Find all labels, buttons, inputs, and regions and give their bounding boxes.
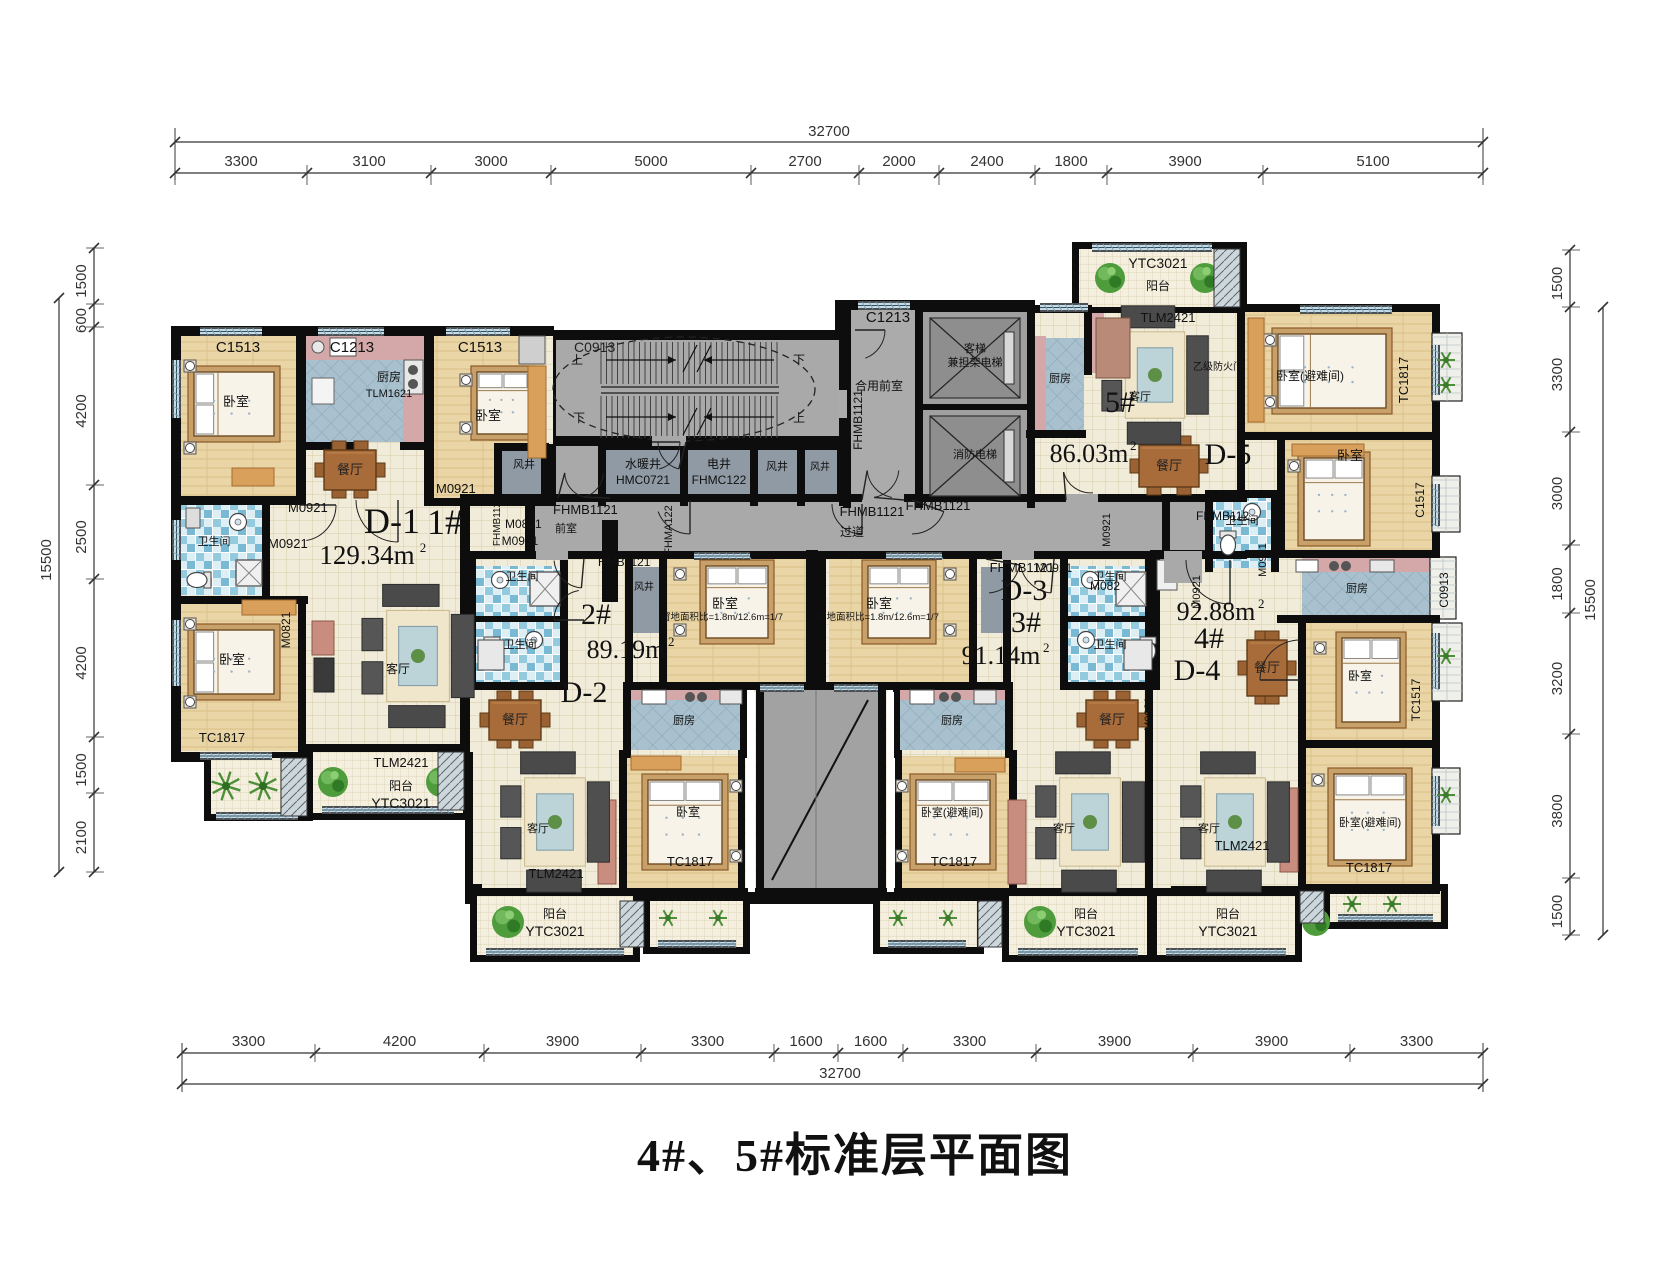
svg-text:C0913: C0913 xyxy=(1437,572,1451,608)
svg-text:YTC3021: YTC3021 xyxy=(1056,923,1115,939)
svg-text:HMC0721: HMC0721 xyxy=(616,473,670,487)
svg-text:1500: 1500 xyxy=(1549,895,1566,928)
svg-text:TC1817: TC1817 xyxy=(931,854,977,869)
svg-text:卧室(避难间): 卧室(避难间) xyxy=(1276,368,1344,383)
svg-text:卫生间: 卫生间 xyxy=(506,569,539,583)
svg-text:TLM2421: TLM2421 xyxy=(374,755,429,770)
svg-text:FHMB1121: FHMB1121 xyxy=(906,498,971,513)
svg-text:M0921: M0921 xyxy=(268,536,308,551)
svg-text:FHMC122: FHMC122 xyxy=(692,473,747,487)
svg-text:风井: 风井 xyxy=(513,457,535,471)
svg-text:客厅: 客厅 xyxy=(527,821,549,835)
svg-text:3300: 3300 xyxy=(224,153,257,170)
svg-text:厨房: 厨房 xyxy=(673,714,695,727)
svg-text:阳台: 阳台 xyxy=(1074,906,1098,921)
svg-text:客厅: 客厅 xyxy=(1053,821,1075,835)
svg-text:C1517: C1517 xyxy=(1413,482,1427,518)
svg-text:3300: 3300 xyxy=(691,1033,724,1050)
svg-text:阳台: 阳台 xyxy=(1216,906,1240,921)
svg-text:客梯: 客梯 xyxy=(964,341,986,355)
svg-text:M0921: M0921 xyxy=(288,500,328,515)
svg-text:卫生间: 卫生间 xyxy=(1094,637,1127,651)
svg-text:上: 上 xyxy=(793,411,805,425)
svg-text:3800: 3800 xyxy=(1549,794,1566,827)
svg-text:TLM2421: TLM2421 xyxy=(529,866,584,881)
svg-text:C1513: C1513 xyxy=(458,339,502,356)
svg-text:TC1817: TC1817 xyxy=(1396,357,1411,403)
svg-text:厨房: 厨房 xyxy=(941,714,963,727)
svg-text:1500: 1500 xyxy=(73,753,90,786)
svg-text:1600: 1600 xyxy=(854,1033,887,1050)
svg-text:电井: 电井 xyxy=(707,457,731,471)
svg-text:卧室(避难间): 卧室(避难间) xyxy=(921,805,983,819)
svg-text:兼担架电梯: 兼担架电梯 xyxy=(948,355,1003,369)
svg-text:2: 2 xyxy=(668,634,675,649)
svg-text:下: 下 xyxy=(793,353,805,367)
svg-text:89.19m: 89.19m xyxy=(587,635,666,664)
svg-text:卫生间: 卫生间 xyxy=(504,637,537,651)
svg-text:消防电梯: 消防电梯 xyxy=(953,447,997,461)
svg-text:4200: 4200 xyxy=(383,1033,416,1050)
svg-text:餐厅: 餐厅 xyxy=(1254,660,1280,675)
svg-text:M0921: M0921 xyxy=(1191,575,1203,609)
svg-text:下: 下 xyxy=(573,411,585,425)
svg-text:卧室: 卧室 xyxy=(676,804,700,819)
svg-text:C0913: C0913 xyxy=(574,339,615,355)
svg-text:风井: 风井 xyxy=(766,459,788,473)
svg-text:卧室: 卧室 xyxy=(223,394,249,409)
svg-text:阳台: 阳台 xyxy=(543,906,567,921)
svg-text:2500: 2500 xyxy=(73,520,90,553)
svg-text:4200: 4200 xyxy=(73,394,90,427)
svg-text:C1213: C1213 xyxy=(866,309,910,326)
svg-text:餐厅: 餐厅 xyxy=(1156,458,1182,473)
svg-text:客厅: 客厅 xyxy=(1129,389,1151,403)
svg-text:YTC3021: YTC3021 xyxy=(1198,923,1257,939)
svg-text:卧室: 卧室 xyxy=(475,408,501,423)
svg-text:HMB1121: HMB1121 xyxy=(598,555,651,569)
svg-text:2: 2 xyxy=(1043,640,1050,655)
svg-text:C1513: C1513 xyxy=(216,339,260,356)
svg-text:5000: 5000 xyxy=(634,153,667,170)
svg-text:厨房: 厨房 xyxy=(377,369,401,384)
svg-text:卧室(避难间): 卧室(避难间) xyxy=(1339,815,1401,829)
svg-text:3300: 3300 xyxy=(232,1033,265,1050)
svg-text:M082: M082 xyxy=(1090,579,1120,593)
svg-text:3900: 3900 xyxy=(546,1033,579,1050)
svg-text:1#: 1# xyxy=(427,502,463,542)
svg-text:卫生间: 卫生间 xyxy=(198,534,231,548)
svg-text:2: 2 xyxy=(1130,438,1137,453)
svg-text:15500: 15500 xyxy=(1582,579,1599,621)
svg-text:3900: 3900 xyxy=(1168,153,1201,170)
svg-text:餐厅: 餐厅 xyxy=(502,712,528,727)
svg-text:M0821: M0821 xyxy=(505,517,542,531)
svg-text:前室: 前室 xyxy=(555,521,577,535)
svg-text:TC1817: TC1817 xyxy=(199,730,245,745)
svg-text:餐厅: 餐厅 xyxy=(337,462,363,477)
svg-text:卧室: 卧室 xyxy=(712,596,738,611)
svg-text:YTC3021: YTC3021 xyxy=(371,795,430,811)
svg-text:2400: 2400 xyxy=(970,153,1003,170)
svg-text:卧室: 卧室 xyxy=(866,596,892,611)
svg-text:餐厅: 餐厅 xyxy=(1099,712,1125,727)
svg-text:3900: 3900 xyxy=(1098,1033,1131,1050)
svg-text:2: 2 xyxy=(1258,596,1265,611)
svg-text:卫生间: 卫生间 xyxy=(1226,513,1259,527)
svg-text:1500: 1500 xyxy=(1549,267,1566,300)
svg-text:FHMB1121: FHMB1121 xyxy=(840,504,905,519)
svg-text:上: 上 xyxy=(571,353,583,367)
svg-text:600: 600 xyxy=(73,308,90,333)
svg-text:32700: 32700 xyxy=(808,123,850,140)
svg-text:窗地面积比=1.8m/12.6m=1/7: 窗地面积比=1.8m/12.6m=1/7 xyxy=(817,611,939,623)
svg-text:D-1: D-1 xyxy=(364,501,420,541)
svg-text:客厅: 客厅 xyxy=(1198,821,1220,835)
svg-text:M0921: M0921 xyxy=(1143,697,1155,731)
svg-text:FHMB1121: FHMB1121 xyxy=(851,390,865,450)
svg-text:TLM2421: TLM2421 xyxy=(1141,310,1196,325)
svg-text:3100: 3100 xyxy=(352,153,385,170)
svg-text:M0921: M0921 xyxy=(1036,561,1073,575)
svg-text:M0921: M0921 xyxy=(436,481,476,496)
svg-text:2: 2 xyxy=(420,540,427,555)
svg-text:阳台: 阳台 xyxy=(1146,278,1170,293)
svg-text:1500: 1500 xyxy=(73,264,90,297)
svg-text:D-3: D-3 xyxy=(1001,574,1048,607)
svg-text:3#: 3# xyxy=(1011,606,1041,639)
svg-text:D-5: D-5 xyxy=(1205,438,1252,471)
svg-text:水暖井: 水暖井 xyxy=(625,457,661,471)
svg-text:阳台: 阳台 xyxy=(389,778,413,793)
svg-text:2000: 2000 xyxy=(882,153,915,170)
svg-text:2700: 2700 xyxy=(788,153,821,170)
svg-text:YTC3021: YTC3021 xyxy=(1128,255,1187,271)
svg-text:TC1517: TC1517 xyxy=(1409,678,1423,721)
svg-text:FHMA122: FHMA122 xyxy=(663,505,675,555)
svg-text:3300: 3300 xyxy=(1549,358,1566,391)
svg-text:卧室: 卧室 xyxy=(1337,448,1363,463)
svg-text:风井: 风井 xyxy=(634,580,654,593)
svg-text:风井: 风井 xyxy=(810,460,830,473)
svg-text:C1213: C1213 xyxy=(330,339,374,356)
svg-text:M0921: M0921 xyxy=(1257,543,1269,577)
svg-text:3300: 3300 xyxy=(1400,1033,1433,1050)
svg-text:129.34m: 129.34m xyxy=(319,540,414,570)
svg-text:3000: 3000 xyxy=(474,153,507,170)
svg-text:客厅: 客厅 xyxy=(386,661,410,676)
svg-text:卧室: 卧室 xyxy=(219,652,245,667)
svg-text:3900: 3900 xyxy=(1255,1033,1288,1050)
svg-text:厨房: 厨房 xyxy=(1346,582,1368,595)
svg-text:15500: 15500 xyxy=(38,539,55,581)
svg-text:D-2: D-2 xyxy=(561,676,608,709)
svg-text:91.14m: 91.14m xyxy=(962,641,1041,670)
svg-text:5100: 5100 xyxy=(1356,153,1389,170)
svg-text:3300: 3300 xyxy=(953,1033,986,1050)
svg-text:1800: 1800 xyxy=(1549,567,1566,600)
svg-text:TLM2421: TLM2421 xyxy=(1215,838,1270,853)
svg-text:FHMB1121: FHMB1121 xyxy=(553,502,618,517)
svg-text:卧室: 卧室 xyxy=(1348,668,1372,683)
svg-text:2100: 2100 xyxy=(73,821,90,854)
svg-text:D-4: D-4 xyxy=(1174,654,1221,687)
svg-text:4#: 4# xyxy=(1194,622,1224,655)
svg-text:TC1817: TC1817 xyxy=(1346,860,1392,875)
svg-text:3000: 3000 xyxy=(1549,477,1566,510)
svg-text:32700: 32700 xyxy=(819,1065,861,1082)
svg-text:4#、5#标准层平面图: 4#、5#标准层平面图 xyxy=(637,1130,1073,1181)
svg-text:TLM1621: TLM1621 xyxy=(366,388,412,400)
svg-text:M0821: M0821 xyxy=(279,611,293,648)
svg-text:4200: 4200 xyxy=(73,646,90,679)
svg-text:M0921: M0921 xyxy=(1101,513,1113,547)
svg-text:2#: 2# xyxy=(581,598,611,631)
svg-text:1800: 1800 xyxy=(1054,153,1087,170)
svg-text:厨房: 厨房 xyxy=(1049,372,1071,385)
svg-text:YTC3021: YTC3021 xyxy=(525,923,584,939)
svg-text:1600: 1600 xyxy=(789,1033,822,1050)
svg-text:M0921: M0921 xyxy=(502,534,539,548)
svg-text:TC1817: TC1817 xyxy=(667,854,713,869)
svg-text:乙级防火门: 乙级防火门 xyxy=(1193,360,1243,373)
svg-text:过道: 过道 xyxy=(840,525,864,539)
svg-text:窗地面积比=1.8m/12.6m=1/7: 窗地面积比=1.8m/12.6m=1/7 xyxy=(661,611,783,623)
svg-text:3200: 3200 xyxy=(1549,662,1566,695)
svg-text:86.03m: 86.03m xyxy=(1050,439,1129,468)
